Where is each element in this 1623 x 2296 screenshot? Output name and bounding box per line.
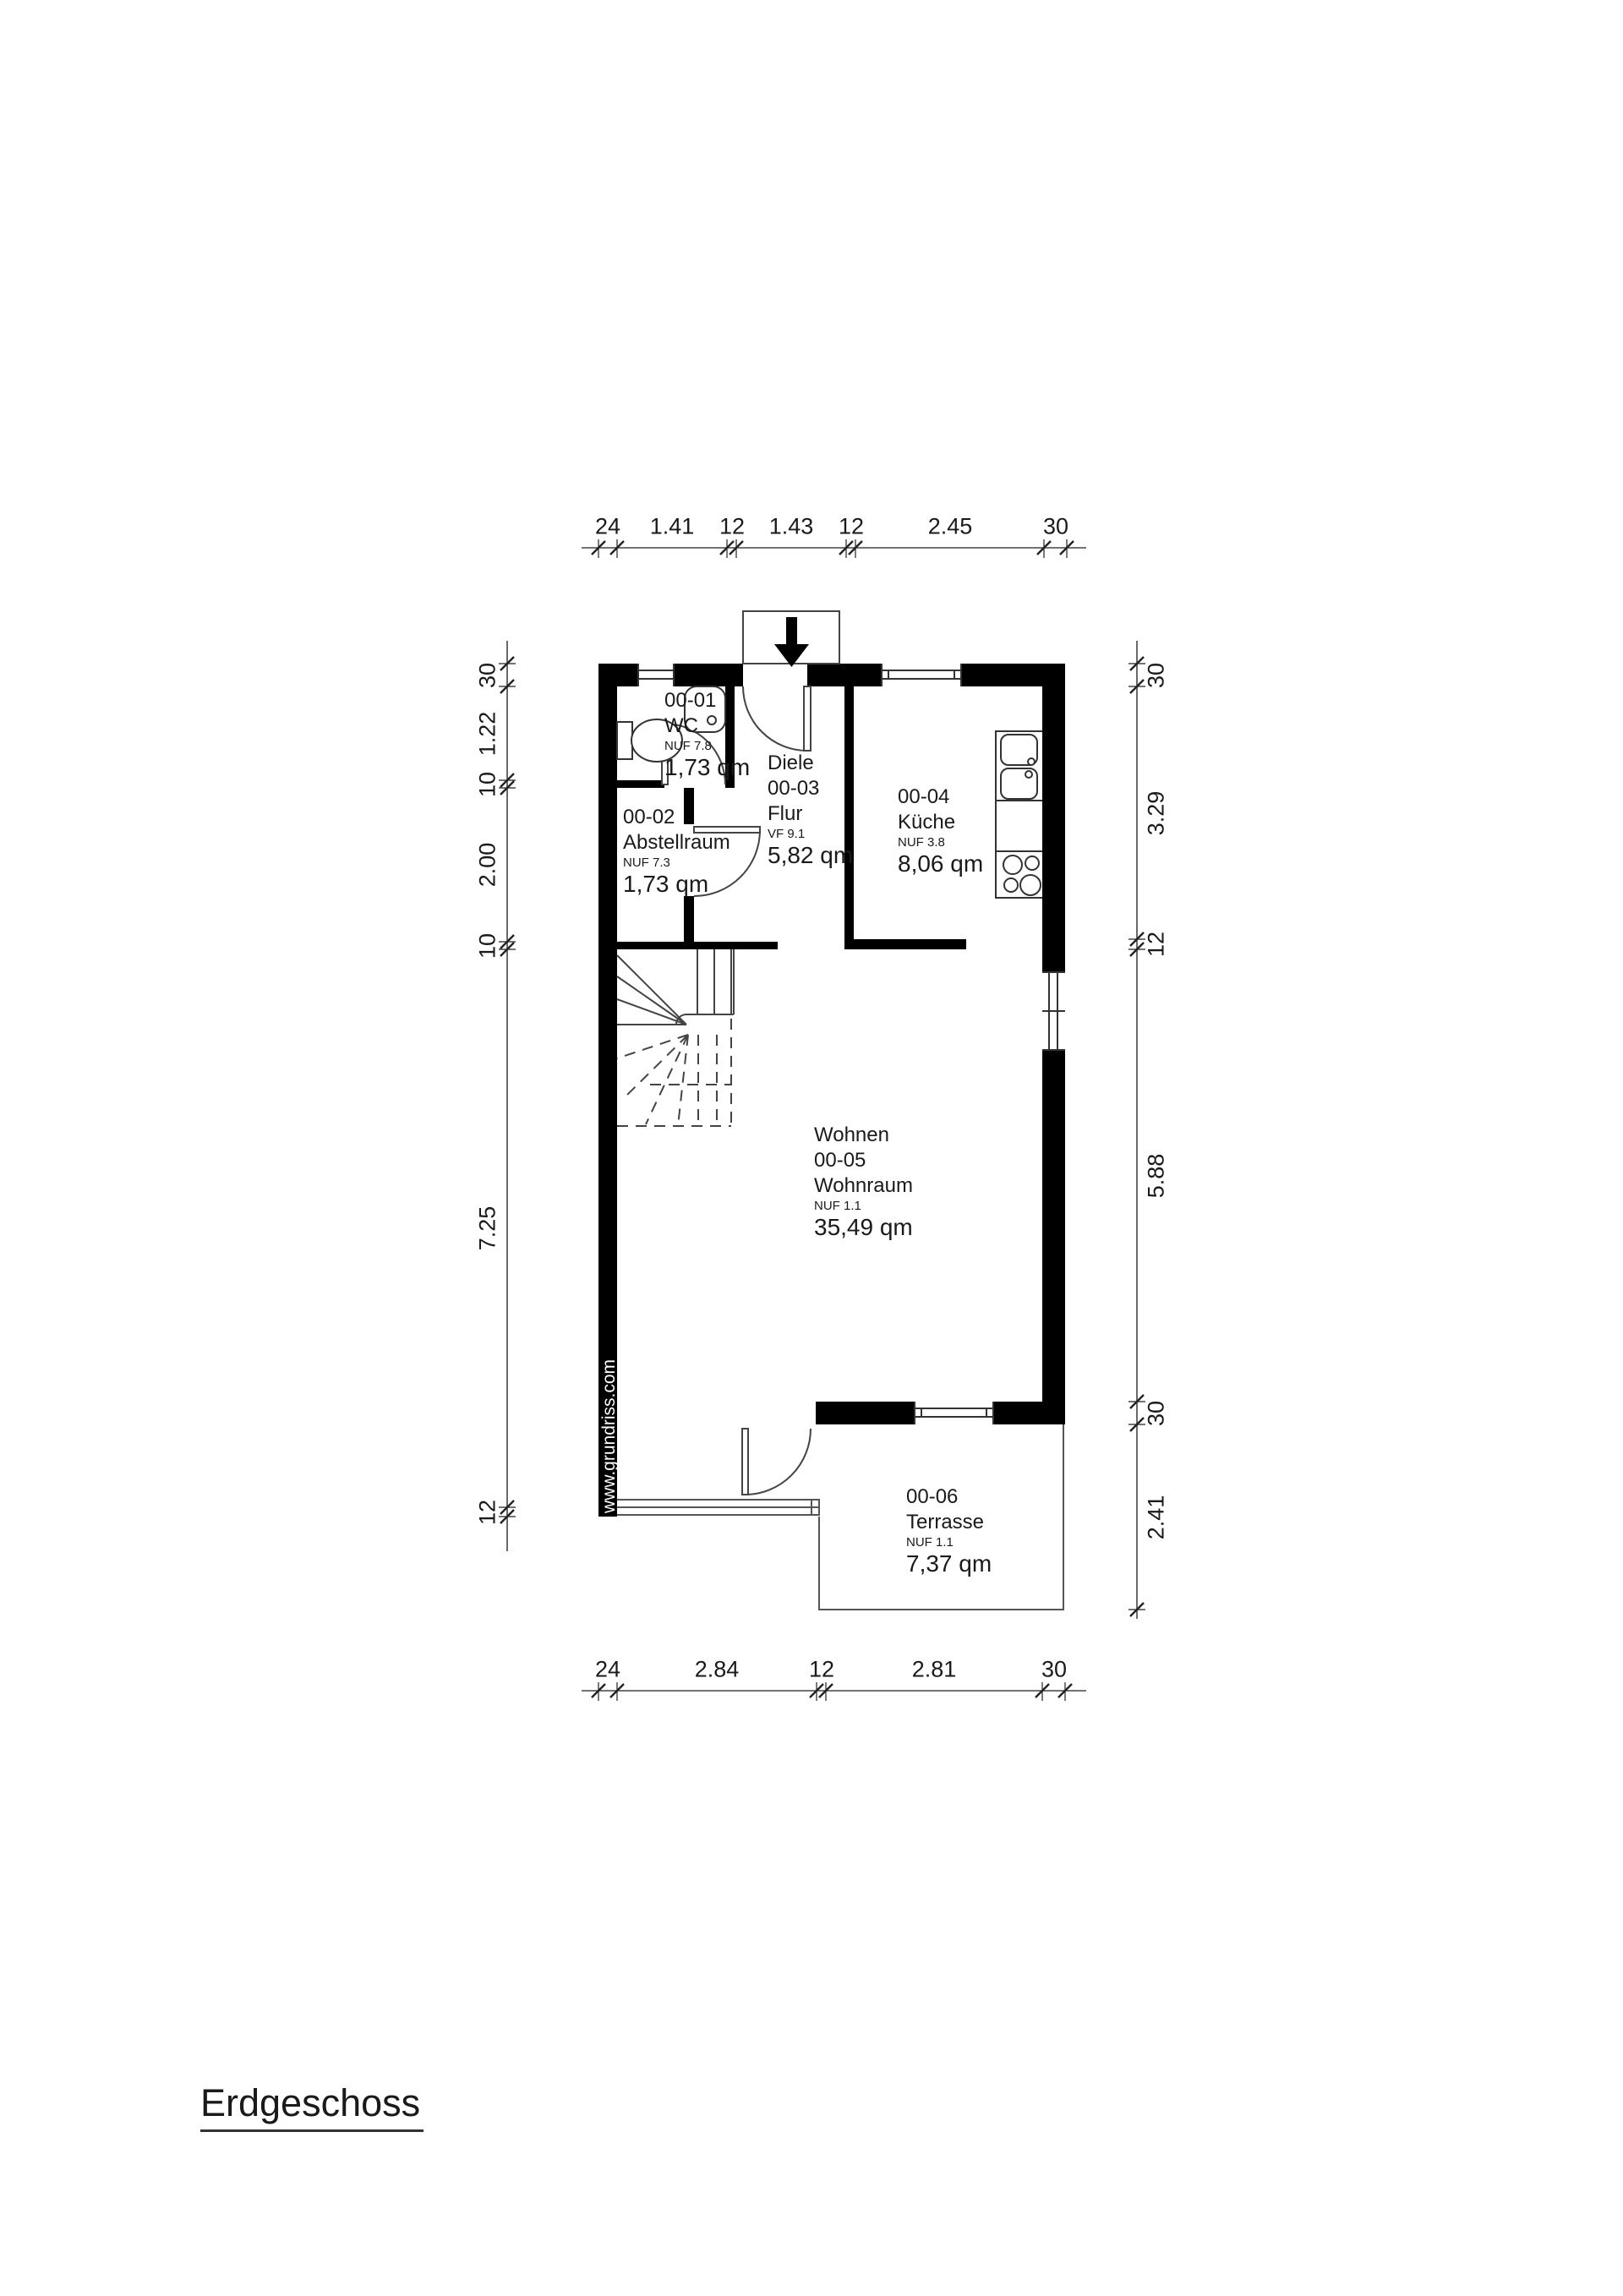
room-nuf: NUF 7.8 — [664, 739, 750, 754]
dim-top-4: 12 — [839, 514, 864, 540]
dimension-chain-top — [582, 539, 1086, 558]
dim-left-3: 2.00 — [475, 843, 501, 888]
room-nuf: NUF 1.1 — [814, 1199, 913, 1214]
room-code: 00-06 — [906, 1484, 992, 1510]
dim-right-5: 2.41 — [1144, 1495, 1170, 1540]
room-code: 00-02 — [623, 805, 730, 830]
dim-top-1: 1.41 — [650, 514, 695, 540]
dim-top-3: 1.43 — [769, 514, 814, 540]
dimension-chain-left — [499, 641, 516, 1551]
right-wall-radiator — [1042, 972, 1065, 1050]
room-area: 5,82 qm — [768, 842, 853, 869]
stove-icon — [1003, 856, 1041, 895]
dim-right-0: 30 — [1144, 663, 1170, 688]
dim-left-4: 10 — [475, 933, 501, 959]
dim-bottom-0: 24 — [595, 1657, 620, 1683]
room-nuf: NUF 1.1 — [906, 1535, 992, 1550]
dim-right-3: 5.88 — [1144, 1154, 1170, 1199]
dimension-chain-right — [1128, 641, 1145, 1619]
dim-right-4: 30 — [1144, 1401, 1170, 1426]
room-label-wc: 00-01 WC NUF 7.8 1,73 qm — [664, 688, 750, 781]
room-name: Wohnraum — [814, 1173, 913, 1199]
dimension-chain-bottom — [582, 1682, 1086, 1701]
dim-left-5: 7.25 — [475, 1206, 501, 1251]
room-code: 00-05 — [814, 1148, 913, 1173]
terrace-parapet — [617, 1500, 819, 1515]
dim-bottom-2: 12 — [809, 1657, 834, 1683]
room-nuf: VF 9.1 — [768, 827, 853, 842]
room-code: 00-01 — [664, 688, 750, 713]
room-name: Flur — [768, 801, 853, 827]
room-nuf: NUF 7.3 — [623, 856, 730, 871]
watermark: www.grundriss.com — [599, 1359, 619, 1514]
dim-top-5: 2.45 — [928, 514, 973, 540]
dim-top-0: 24 — [595, 514, 620, 540]
room-area: 1,73 qm — [664, 754, 750, 781]
entrance-door-arc — [743, 686, 811, 751]
kitchen-sink-icon — [1001, 735, 1037, 799]
room-label-terrasse: 00-06 Terrasse NUF 1.1 7,37 qm — [906, 1484, 992, 1577]
room-label-abstellraum: 00-02 Abstellraum NUF 7.3 1,73 qm — [623, 805, 730, 898]
dim-right-2: 12 — [1144, 932, 1170, 957]
room-code: 00-03 — [768, 776, 853, 801]
room-title: Wohnen — [814, 1123, 913, 1148]
dim-left-1: 1.22 — [475, 712, 501, 757]
living-window — [915, 1402, 993, 1424]
dim-bottom-4: 30 — [1041, 1657, 1067, 1683]
room-name: Küche — [898, 810, 983, 835]
room-area: 7,37 qm — [906, 1550, 992, 1577]
room-label-diele: Diele 00-03 Flur VF 9.1 5,82 qm — [768, 751, 853, 869]
kitchen-window — [882, 664, 961, 686]
dim-left-6: 12 — [475, 1500, 501, 1525]
wc-window — [638, 664, 674, 686]
terrace-door-arc — [742, 1429, 811, 1495]
floor-plan-drawing: www.grundriss.com — [0, 0, 1623, 2296]
dim-left-2: 10 — [475, 772, 501, 797]
stairs — [617, 949, 734, 1126]
dim-left-0: 30 — [475, 663, 501, 688]
room-area: 8,06 qm — [898, 850, 983, 877]
room-name: Terrasse — [906, 1510, 992, 1535]
room-title: Diele — [768, 751, 853, 776]
room-name: WC — [664, 713, 750, 739]
room-nuf: NUF 3.8 — [898, 835, 983, 850]
floor-plan-page: www.grundriss.com 00-01 WC NUF 7.8 1,73 … — [0, 0, 1623, 2296]
dim-bottom-1: 2.84 — [695, 1657, 740, 1683]
room-area: 35,49 qm — [814, 1214, 913, 1241]
room-name: Abstellraum — [623, 830, 730, 856]
room-label-wohnen: Wohnen 00-05 Wohnraum NUF 1.1 35,49 qm — [814, 1123, 913, 1241]
dim-bottom-3: 2.81 — [912, 1657, 957, 1683]
dim-right-1: 3.29 — [1144, 791, 1170, 836]
entrance-porch — [743, 611, 839, 667]
dim-top-2: 12 — [719, 514, 745, 540]
room-code: 00-04 — [898, 784, 983, 810]
room-area: 1,73 qm — [623, 871, 730, 898]
floor-title: Erdgeschoss — [200, 2081, 424, 2132]
room-label-kueche: 00-04 Küche NUF 3.8 8,06 qm — [898, 784, 983, 877]
dim-top-6: 30 — [1043, 514, 1068, 540]
